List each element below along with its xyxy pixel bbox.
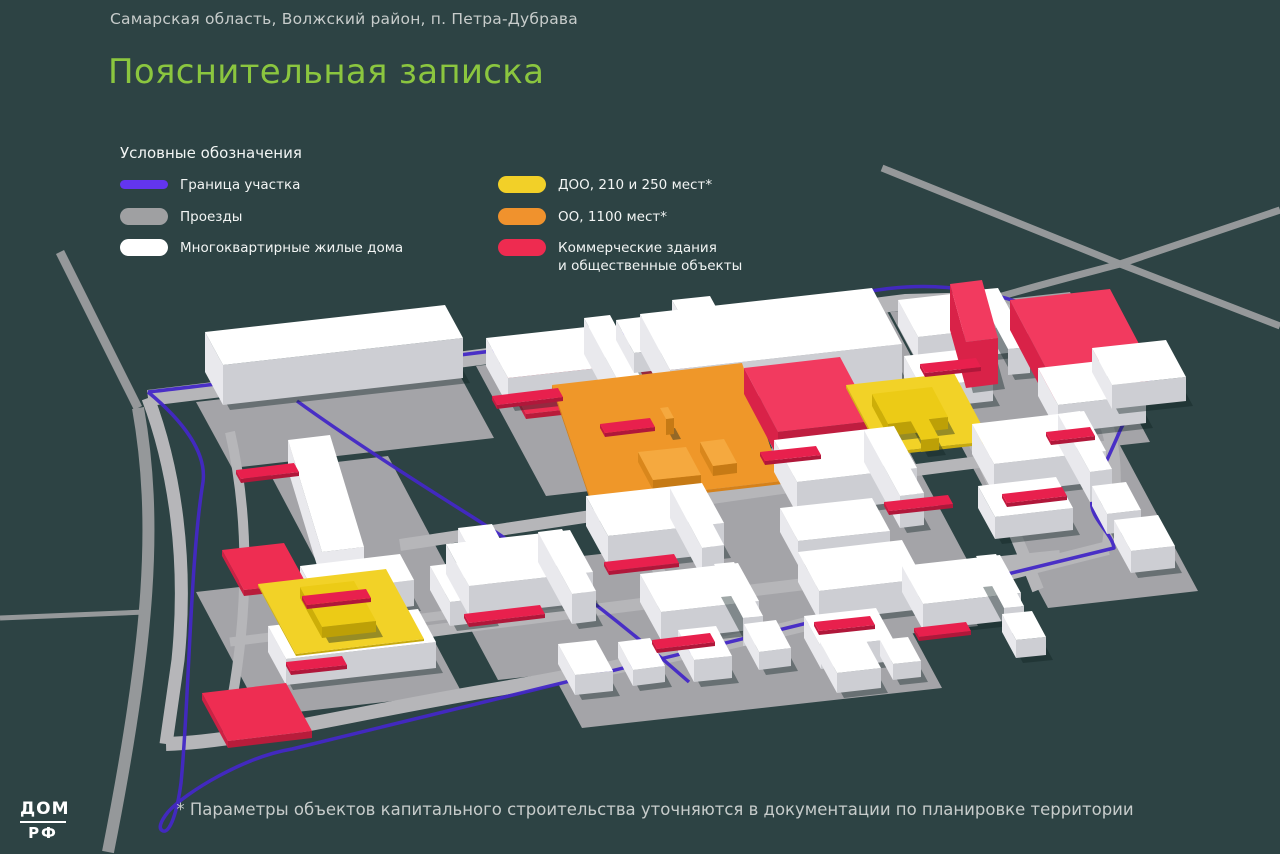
legend-column-left: Граница участкаПроездыМногоквартирные жи…	[120, 176, 420, 275]
logo-top-text: ДОМ	[20, 801, 66, 818]
legend: Условные обозначения Граница участкаПрое…	[120, 144, 798, 275]
legend-item-label: ДОО, 210 и 250 мест*	[558, 176, 712, 195]
legend-item: Коммерческие здания и общественные объек…	[498, 239, 798, 275]
legend-item-label: Коммерческие здания и общественные объек…	[558, 239, 742, 275]
legend-item-label: Проезды	[180, 208, 242, 227]
legend-swatch	[120, 208, 168, 225]
dom-rf-logo: ДОМ РФ	[20, 801, 66, 841]
slide: Самарская область, Волжский район, п. Пе…	[0, 0, 1280, 854]
location-subtitle: Самарская область, Волжский район, п. Пе…	[110, 10, 578, 28]
page-title: Пояснительная записка	[108, 52, 544, 92]
legend-item-label: Граница участка	[180, 176, 300, 195]
legend-swatch	[120, 180, 168, 189]
legend-item: Многоквартирные жилые дома	[120, 239, 420, 258]
legend-item: Граница участка	[120, 176, 420, 195]
legend-heading: Условные обозначения	[120, 144, 798, 162]
legend-swatch	[498, 239, 546, 256]
masterplan-map	[0, 0, 1280, 854]
legend-swatch	[120, 239, 168, 256]
legend-item: ОО, 1100 мест*	[498, 208, 798, 227]
logo-divider	[20, 821, 66, 823]
legend-item-label: ОО, 1100 мест*	[558, 208, 667, 227]
footnote: * Параметры объектов капитального строит…	[160, 800, 1150, 819]
logo-bottom-text: РФ	[20, 826, 66, 841]
legend-swatch	[498, 208, 546, 225]
legend-item-label: Многоквартирные жилые дома	[180, 239, 403, 258]
legend-item: Проезды	[120, 208, 420, 227]
legend-swatch	[498, 176, 546, 193]
legend-column-right: ДОО, 210 и 250 мест*ОО, 1100 мест*Коммер…	[498, 176, 798, 275]
legend-item: ДОО, 210 и 250 мест*	[498, 176, 798, 195]
